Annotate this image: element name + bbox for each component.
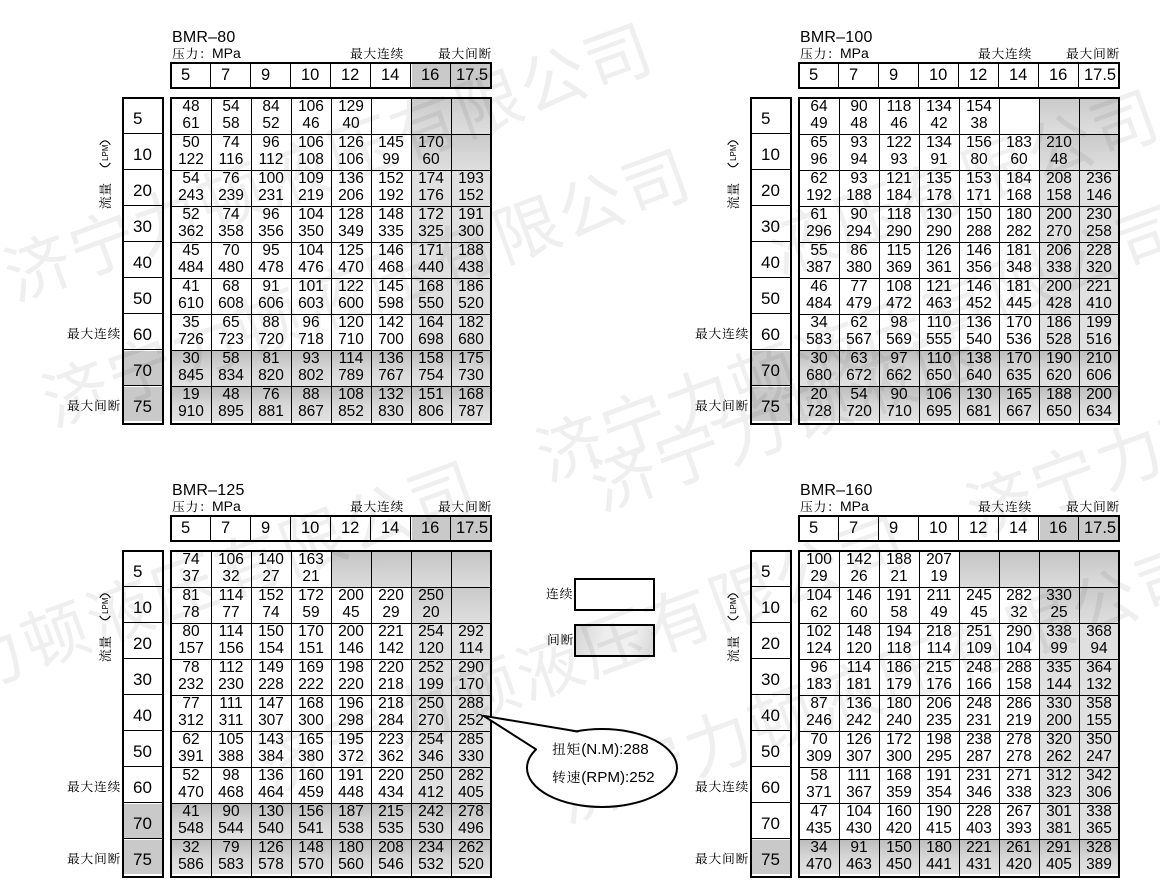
svg-text:(RPM):252: (RPM):252 <box>581 769 654 786</box>
svg-text:LPM: LPM <box>729 144 738 161</box>
svg-text:(N.M):288: (N.M):288 <box>581 741 649 758</box>
svg-text:LPM: LPM <box>101 597 110 614</box>
svg-text:LPM: LPM <box>101 144 110 161</box>
svg-text:LPM: LPM <box>729 597 738 614</box>
